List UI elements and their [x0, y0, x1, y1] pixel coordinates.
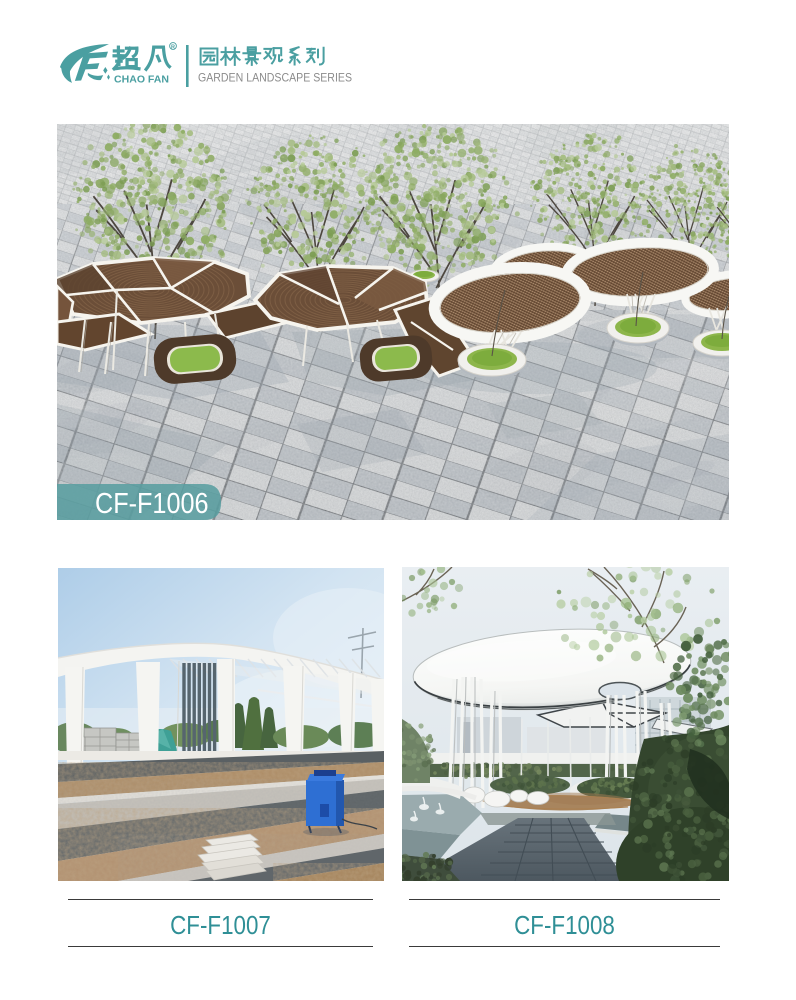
svg-text:R: R: [171, 45, 175, 51]
svg-text:CHAO FAN: CHAO FAN: [114, 74, 169, 86]
svg-text:CF-F1006: CF-F1006: [95, 486, 209, 519]
svg-text:GARDEN LANDSCAPE SERIES: GARDEN LANDSCAPE SERIES: [198, 71, 352, 85]
